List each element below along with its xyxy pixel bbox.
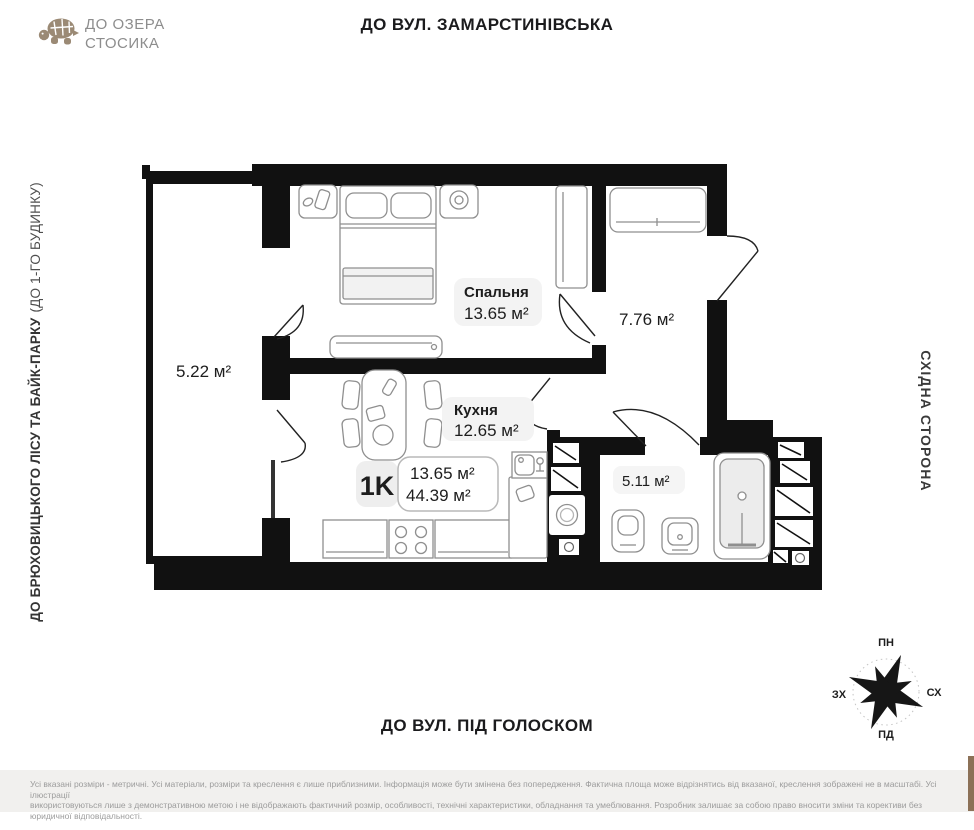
bed-icon <box>340 186 436 304</box>
kitchen-area-label: 12.65 м² <box>454 421 519 440</box>
logo-line-2: СТОСИКА <box>85 34 165 53</box>
compass-rose: ПН СХ ЗХ ПД <box>826 630 946 742</box>
street-label-top: ДО ВУЛ. ЗАМАРСТИНІВСЬКА <box>0 15 974 35</box>
disclaimer-line-2: використовуються лише з демонстративною … <box>0 800 974 821</box>
floor-plan-page: ДО ОЗЕРА СТОСИКА ДО ВУЛ. ЗАМАРСТИНІВСЬКА… <box>0 0 974 830</box>
bath-sink-icon <box>662 518 698 554</box>
unit-type-label: 1K <box>360 471 395 501</box>
lamp-table-icon <box>440 185 478 218</box>
kitchen-name-label: Кухня <box>454 402 498 419</box>
disclaimer-bar: Усі вказані розміри - метричні. Усі мате… <box>0 770 974 812</box>
counter-icon <box>435 520 511 558</box>
compass-south-label: ПД <box>878 729 894 741</box>
photo-edge-artifact <box>968 756 974 811</box>
dining-set-icon <box>342 370 443 460</box>
toilet-icon <box>612 510 644 552</box>
counter-corner-icon <box>509 477 547 558</box>
bedroom-name-label: Спальня <box>464 284 529 301</box>
closet-icon <box>556 186 587 288</box>
wardrobe-icon <box>610 188 706 232</box>
living-area-label: 13.65 м² <box>410 464 475 483</box>
direction-label-right: СХІДНА СТОРОНА <box>916 311 934 531</box>
balcony-bedroom-door <box>274 305 303 339</box>
bathtub-icon <box>714 453 770 559</box>
balcony-area-label: 5.22 м² <box>176 362 231 381</box>
compass-west-label: ЗХ <box>832 689 847 701</box>
counter-icon <box>323 520 387 558</box>
nightstand-icon <box>299 185 337 218</box>
balcony-kitchen-door <box>277 410 305 462</box>
direction-left-main: ДО БРЮХОВИЦЬКОГО ЛІСУ ТА БАЙК-ПАРКУ <box>28 318 43 622</box>
compass-star-icon <box>834 640 938 742</box>
kitchen-sink-icon <box>512 452 547 478</box>
entry-door <box>717 236 758 301</box>
hall-area-label: 7.76 м² <box>619 310 674 329</box>
bathroom-area-label: 5.11 м² <box>622 473 670 490</box>
bedroom-door <box>559 294 595 343</box>
bedroom-area-label: 13.65 м² <box>464 304 529 323</box>
dresser-icon <box>330 336 442 358</box>
direction-left-secondary: (ДО 1-ГО БУДИНКУ) <box>28 182 43 312</box>
direction-label-left: ДО БРЮХОВИЦЬКОГО ЛІСУ ТА БАЙК-ПАРКУ(ДО 1… <box>28 132 48 672</box>
compass-east-label: СХ <box>927 687 943 699</box>
total-area-label: 44.39 м² <box>406 486 471 505</box>
disclaimer-line-1: Усі вказані розміри - метричні. Усі мате… <box>0 770 974 800</box>
compass-north-label: ПН <box>878 637 894 649</box>
floor-plan: 5.22 м² Спальня 13.65 м² 7.76 м² Кухня 1… <box>140 158 830 603</box>
stove-icon <box>389 520 433 558</box>
